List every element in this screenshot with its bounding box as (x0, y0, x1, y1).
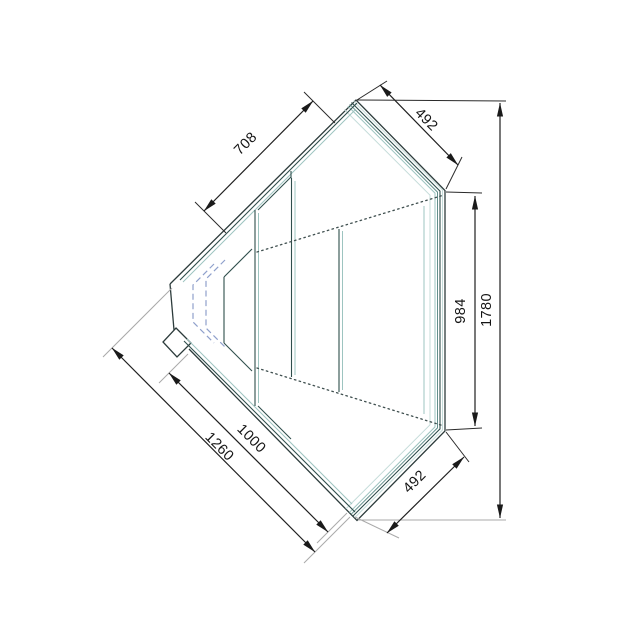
dim-label-1780: 1780 (479, 293, 495, 327)
hidden-corner-profile-inner (206, 260, 225, 347)
left-corner-chamfer (170, 284, 174, 330)
hidden-edge-top (257, 195, 444, 252)
technical-drawing: 708 492 984 1780 (0, 0, 640, 640)
dimension-708: 708 (195, 92, 335, 233)
dimension-492-top: 492 (357, 81, 462, 189)
drawing-page: 708 492 984 1780 (0, 0, 640, 640)
back-wall-lines (180, 103, 357, 512)
glass-front-band (344, 101, 442, 518)
dimension-492-bottom: 492 (355, 432, 469, 538)
cabinet-body (163, 100, 445, 521)
dimension-1260: 1260 (103, 288, 350, 563)
dim-label-708: 708 (231, 129, 260, 158)
dim-label-984: 984 (453, 298, 469, 323)
dim-label-1260: 1260 (201, 429, 236, 464)
dimension-1000: 1000 (159, 354, 347, 543)
dim-label-1000: 1000 (233, 421, 268, 456)
dimension-1780: 1780 (357, 100, 506, 520)
dim-label-492-top: 492 (411, 105, 440, 134)
hidden-corner-profile-outer (193, 264, 214, 343)
left-corner-tab (163, 328, 191, 357)
hidden-edge-bottom (257, 368, 444, 426)
dimension-984: 984 (446, 192, 482, 430)
